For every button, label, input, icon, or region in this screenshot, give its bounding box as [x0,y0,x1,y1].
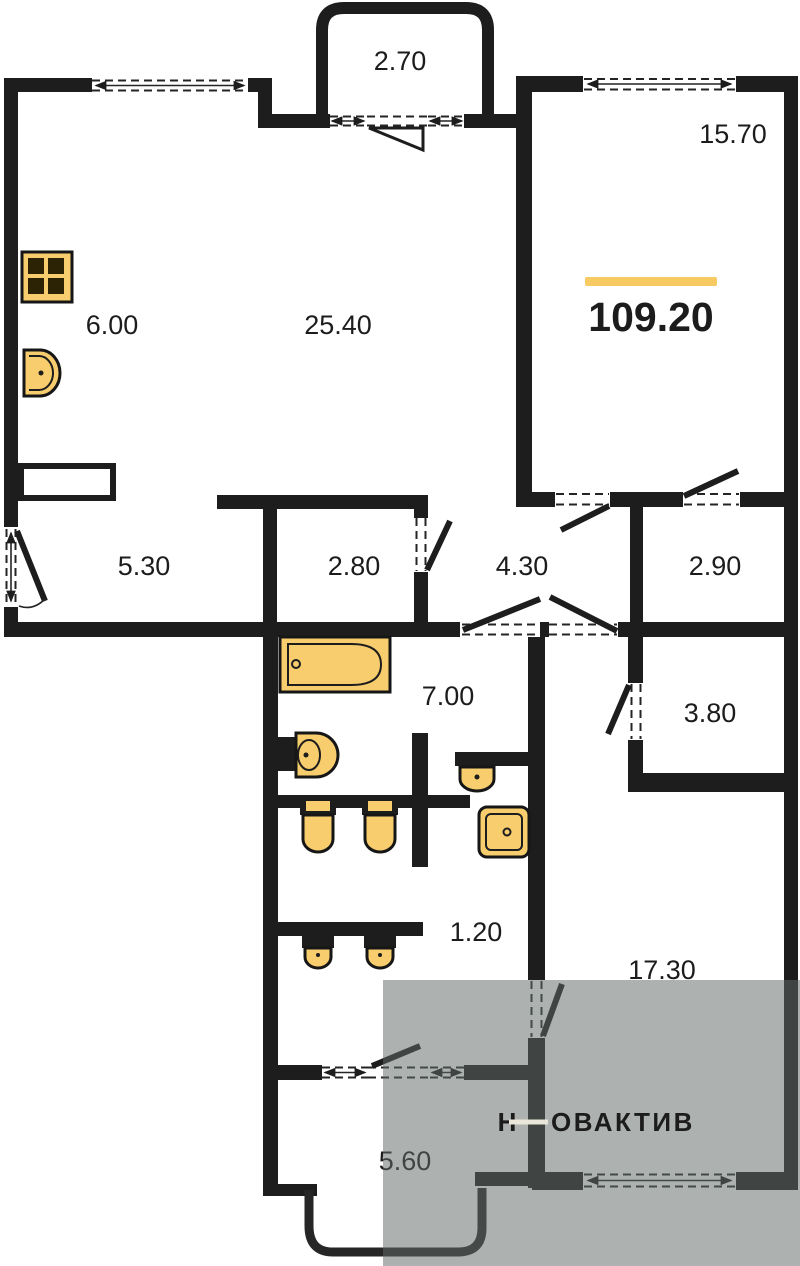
kitchen-sink [24,350,60,396]
window [330,117,366,126]
burner [28,258,44,274]
wall-segment [540,622,549,637]
burner [48,258,64,274]
wall-segment [610,492,683,507]
wall-segment [528,637,545,980]
wall-segment [516,76,532,507]
wall-segment [263,637,278,1188]
burner [28,278,44,294]
door-leaf [369,128,423,150]
wall-segment [258,78,272,128]
vanity-sink [364,936,396,968]
area-label-wc: 1.20 [450,917,503,947]
wall-segment [217,495,427,509]
area-label-kitchen: 6.00 [86,310,139,340]
window [428,117,464,126]
wall-segment [278,922,423,936]
wall-segment [414,495,428,518]
area-label-corridor: 4.30 [496,551,549,581]
wall-segment [4,78,92,92]
window [584,79,735,90]
wall-segment [628,637,643,683]
wall-segment [628,773,798,792]
floor-plan: 2.70 15.70 6.00 25.40 109.20 5.30 2.80 4… [0,0,800,1266]
balcony-door [367,117,427,151]
toilet [362,797,398,852]
wall-segment [455,752,528,766]
watermark-name: ОВАКТИВ [551,1107,695,1137]
wall-segment [630,507,643,625]
inner-hall-door [549,597,617,635]
sink-bracket [278,737,296,771]
area-label-storage: 2.80 [328,551,381,581]
area-label-balcony-top: 2.70 [374,46,427,76]
entrance-door [7,529,46,607]
wardrobe [21,466,113,498]
total-area-label: 109.20 [588,294,713,340]
area-label-living: 25.40 [304,310,372,340]
bedroom-top-door [556,494,609,530]
window [322,1068,368,1078]
area-label-bathroom: 7.00 [422,681,475,711]
closet-door [608,684,641,739]
wall-sink [278,733,338,777]
area-label-wardrobe: 2.90 [689,551,742,581]
wall-segment [516,492,555,507]
floor-plan-svg: 2.70 15.70 6.00 25.40 109.20 5.30 2.80 4… [0,0,800,1266]
vanity-sink [302,936,334,968]
burner [48,278,64,294]
bathroom-door [462,599,540,635]
shower-tray [479,807,529,857]
total-area-accent-bar [585,277,717,286]
area-label-hall: 5.30 [118,551,171,581]
area-label-room-top-right: 15.70 [699,119,767,149]
wall-segment [4,622,460,637]
stove [22,252,72,302]
wall-segment [272,114,330,128]
bedroom-side-door [684,471,739,505]
wall-segment [263,509,277,625]
window [92,81,248,91]
hand-sink [460,767,494,791]
toilet [300,797,336,852]
wall-segment [740,492,798,507]
bathtub [280,637,390,692]
wall-segment [278,1065,322,1080]
wall-segment [618,622,798,637]
wall-segment [4,78,18,527]
wall-segment [414,572,428,625]
area-label-closet: 3.80 [684,698,737,728]
storage-door [417,518,451,571]
